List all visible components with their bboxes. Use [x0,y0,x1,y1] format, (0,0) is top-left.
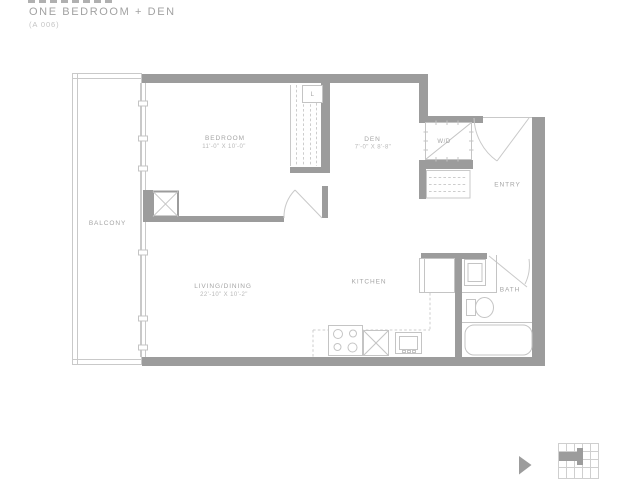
window-mullion [139,250,148,255]
wall-segment [419,74,428,118]
bedroom-label: BEDROOM [205,135,245,142]
column [153,192,178,217]
living-dining-dimensions: 22'-10" X 10'-2" [200,292,248,298]
bath-door [489,256,529,287]
wall-segment [290,167,330,173]
window-mullion [139,166,148,171]
entry-closet [427,171,471,199]
wall-segment [142,74,428,83]
floorplan-drawing: L W/D [0,0,640,480]
window-mullion [139,101,148,106]
linen-closet-label: L [311,92,315,98]
unit-highlight [577,448,583,465]
den-label: DEN [364,136,380,143]
unit-highlight [559,452,579,461]
cursor-arrow-icon [519,456,532,475]
balcony-railing [73,74,142,365]
stove [329,326,363,356]
wall-segment [143,190,153,222]
wall-segment [322,186,328,218]
living-dining-label: LIVING/DINING [194,283,252,290]
wall-segment [455,253,462,358]
entry-label: ENTRY [494,182,520,189]
floorplan-page: ONE BEDROOM + DEN (A 006) [0,0,640,480]
wall-segment [419,116,483,123]
key-plan-icon [559,444,599,479]
dishwasher [364,331,389,356]
laundry-label: W/D [437,139,450,145]
wall-segment [142,357,545,366]
washer-dryer-unit: W/D [424,121,474,162]
bedroom-closet: L [291,85,323,166]
bath-fixtures [462,255,532,355]
window-mullion [139,345,148,350]
wall-segment [419,160,426,199]
window-mullion [139,316,148,321]
entry-door [474,118,529,161]
kitchen-sink [396,333,422,354]
kitchen-label: KITCHEN [352,279,387,286]
wall-segment [419,160,473,169]
window-mullion [139,136,148,141]
bath-vanity-sink [465,260,486,286]
bathtub [465,325,532,355]
toilet [467,298,494,318]
bedroom-dimensions: 11'-0" X 10'-0" [202,144,245,150]
balcony-label: BALCONY [89,220,126,227]
bath-label: BATH [500,287,520,294]
kitchen-fixtures [313,259,455,358]
den-dimensions: 7'-0" X 8'-8" [355,145,391,151]
wall-segment [532,117,545,366]
bedroom-door [284,190,322,218]
